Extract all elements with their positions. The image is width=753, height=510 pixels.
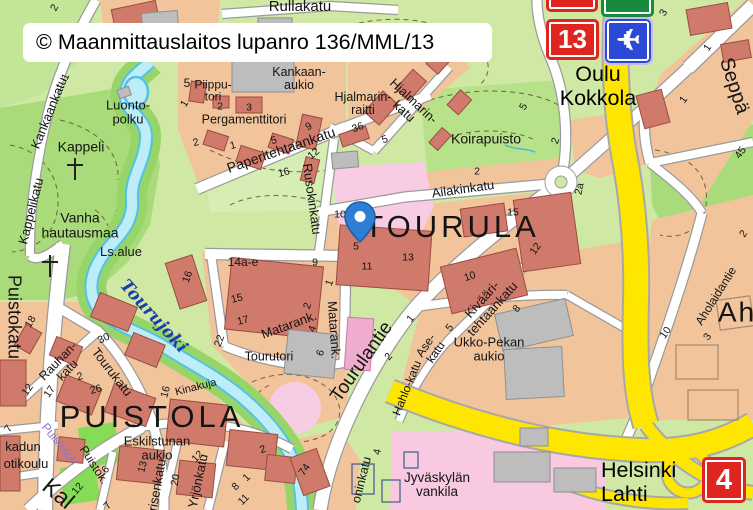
- road-sign-4-number: 4: [716, 464, 732, 497]
- map-label: Ls.alue: [100, 245, 142, 259]
- map-label: 15: [230, 292, 244, 305]
- airport-sign: ✈: [605, 19, 651, 63]
- map-label: Kankaankatu: [29, 75, 70, 150]
- map-label: Puistok.: [77, 444, 111, 487]
- map-label: 5: [270, 135, 278, 147]
- map-label: Hahlo-katu: [390, 359, 423, 417]
- map-label: 3: [702, 331, 714, 342]
- map-label: 13: [402, 253, 414, 264]
- map-label: 16: [181, 270, 195, 285]
- map-label: 17: [42, 384, 58, 400]
- map-label: Aholaidantie: [693, 265, 739, 328]
- map-label: 3: [658, 8, 670, 19]
- map-canvas[interactable]: TOURULAPUISTOLAAhRullakatuKankaankatuLuo…: [0, 0, 753, 510]
- map-label: Kappelikatu: [16, 176, 46, 245]
- map-label: 5: [380, 134, 389, 146]
- map-label: 30: [96, 332, 111, 347]
- map-label: oninkatu: [350, 455, 374, 504]
- map-label: 1: [324, 278, 336, 287]
- map-label: 6: [100, 464, 112, 475]
- map-label: Hjalmarin- katu: [378, 76, 440, 136]
- map-label: 4: [307, 324, 319, 333]
- map-label: 1: [60, 72, 72, 82]
- map-label: Kal: [38, 474, 79, 510]
- district-label-partial: Ah: [718, 297, 753, 326]
- map-label: 1: [702, 42, 714, 53]
- location-marker[interactable]: [343, 200, 377, 244]
- map-label: 5: [444, 322, 456, 333]
- map-label: Ase- katu: [414, 332, 448, 366]
- map-label: Seppä: [715, 55, 753, 116]
- map-label: 2: [49, 3, 61, 14]
- river-label: Tourujoki: [116, 277, 190, 357]
- map-label: 15: [507, 208, 519, 219]
- road-sign-13-number: 13: [558, 24, 587, 55]
- map-label: 7: [3, 423, 15, 434]
- map-label: Tourulantie: [327, 318, 396, 405]
- map-label: Puistokatu: [5, 275, 24, 359]
- map-label: Rusokinkatu: [300, 163, 323, 236]
- map-label: 8: [230, 481, 242, 493]
- map-label: 2: [192, 137, 200, 149]
- airplane-icon: ✈: [616, 27, 640, 56]
- map-label: 16: [159, 385, 173, 399]
- road-sign-partial-red: [546, 0, 598, 12]
- road-sign-4: 4: [702, 457, 746, 503]
- map-label: 74: [297, 462, 313, 478]
- destination-label-south: Helsinki Lahti: [601, 459, 676, 506]
- map-label: Hjalmarin- raitti: [335, 91, 392, 117]
- map-label: 2: [738, 228, 750, 239]
- map-label: 8: [511, 303, 523, 314]
- map-label: 2: [474, 167, 480, 178]
- district-label-puistola: PUISTOLA: [60, 401, 245, 433]
- destination-label-north: Oulu Kokkola: [543, 63, 653, 110]
- map-label: 26: [89, 383, 103, 397]
- map-label: 2: [258, 444, 267, 456]
- map-label: 5: [184, 77, 191, 89]
- map-label: Matarank.: [260, 309, 319, 341]
- attribution-banner: © Maanmittauslaitos lupanro 136/MML/13: [23, 23, 492, 62]
- map-label: 1: [229, 140, 237, 152]
- map-label: Kappeli: [58, 140, 105, 155]
- map-label: Koirapuisto: [451, 132, 521, 147]
- map-label: 1: [241, 472, 253, 484]
- map-label: 11: [362, 262, 373, 273]
- map-label: Ailakinkatu: [431, 178, 495, 200]
- map-label: 10: [463, 270, 477, 284]
- map-label: Luonto- polku: [106, 98, 150, 125]
- map-label: 12: [528, 241, 544, 257]
- map-label: Pergamenttitori: [202, 114, 287, 127]
- map-label: 20: [170, 473, 183, 486]
- map-label: Tourutori: [245, 351, 294, 364]
- map-label: 12: [190, 449, 206, 465]
- map-label: Kivääri- tehtaankatu: [454, 270, 520, 339]
- map-label: 22: [213, 334, 227, 349]
- map-label: Puistotori: [39, 421, 81, 467]
- map-label: 2a: [573, 182, 586, 196]
- map-label: 1: [179, 99, 191, 110]
- road-sign-partial-green: [601, 0, 654, 17]
- map-label: Yrjönkatu: [186, 453, 211, 510]
- map-label: 7: [102, 500, 114, 510]
- map-label: Matarank.: [325, 301, 343, 360]
- map-label: 1: [405, 313, 417, 324]
- map-label: Kankaan- aukio: [272, 66, 326, 92]
- map-label: 45: [733, 145, 749, 161]
- map-label: Vanha hautausmaa: [41, 210, 118, 239]
- map-label: Kinakuja: [174, 377, 218, 398]
- map-label: Tourukatu: [89, 345, 135, 398]
- attribution-text: © Maanmittauslaitos lupanro 136/MML/13: [36, 30, 434, 55]
- map-label: 4: [372, 448, 384, 456]
- map-label: 6: [315, 348, 327, 357]
- map-label: kadun: [5, 440, 40, 454]
- road-sign-13: 13: [546, 19, 599, 60]
- map-label: 2: [383, 351, 395, 362]
- map-label: 11: [236, 492, 251, 507]
- map-label: 9: [304, 121, 315, 133]
- map-label: 17: [236, 314, 250, 327]
- map-label: 1: [678, 94, 690, 105]
- map-label: 2: [76, 371, 84, 383]
- map-label: 2: [550, 136, 562, 145]
- map-label: 5: [518, 102, 530, 113]
- map-label: 12: [70, 481, 86, 497]
- map-label: 12: [20, 382, 36, 398]
- district-label-tourula: TOURULA: [364, 211, 540, 243]
- map-label: 2: [302, 301, 314, 310]
- map-label: Piippu- tori: [194, 79, 231, 104]
- map-label: 14a-e: [228, 256, 259, 268]
- map-label: Jyväskylän vankila: [404, 471, 470, 499]
- map-label: Rullakatu: [269, 0, 332, 15]
- map-label: Ukko-Pekan aukio: [454, 335, 525, 362]
- map-label: risenkatu: [146, 458, 168, 510]
- map-label: 3: [246, 103, 252, 114]
- map-label: 36: [351, 121, 366, 135]
- map-label: Eskilstunan aukio: [124, 434, 190, 461]
- map-label: 13: [136, 460, 150, 474]
- map-label: otikoulu: [4, 457, 49, 471]
- map-label: Rauhan- katu: [37, 340, 89, 393]
- map-label: 12: [306, 146, 322, 162]
- map-label: 16: [277, 166, 291, 180]
- map-label: 2: [217, 102, 223, 113]
- map-label: Paperitehtaankatu: [225, 125, 337, 176]
- location-pin-icon: [343, 200, 377, 244]
- map-label: 18: [23, 314, 38, 330]
- map-label: 10: [658, 325, 674, 341]
- map-label: 9: [312, 258, 318, 269]
